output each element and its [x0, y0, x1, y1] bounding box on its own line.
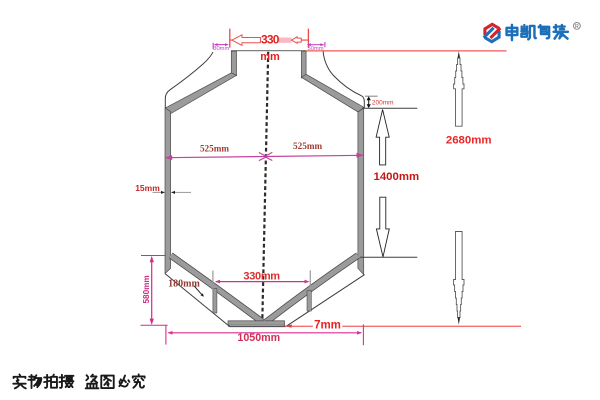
svg-text:330: 330 [261, 33, 280, 47]
svg-text:2680mm: 2680mm [446, 134, 492, 146]
svg-text:200mm: 200mm [372, 99, 394, 106]
svg-text:330mm: 330mm [243, 270, 280, 282]
svg-text:30mm: 30mm [213, 46, 229, 52]
svg-text:525mm: 525mm [293, 141, 322, 151]
svg-text:580mm: 580mm [142, 275, 151, 303]
svg-text:7mm: 7mm [314, 319, 341, 331]
svg-text:mm: mm [260, 51, 280, 63]
svg-text:1400mm: 1400mm [373, 171, 419, 183]
svg-text:R: R [575, 24, 579, 30]
svg-text:1050mm: 1050mm [237, 332, 280, 344]
svg-text:525mm: 525mm [200, 143, 229, 153]
svg-text:15mm: 15mm [135, 183, 160, 193]
